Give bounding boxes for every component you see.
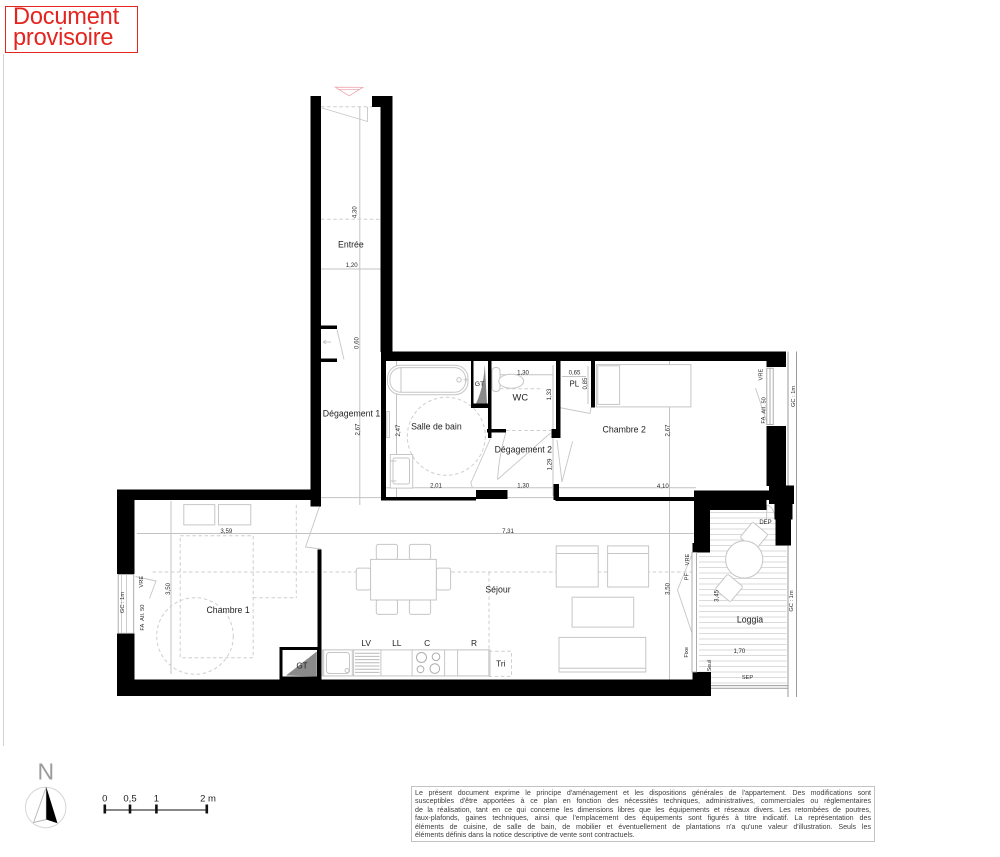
svg-text:1,30: 1,30 <box>517 369 529 376</box>
svg-text:7,31: 7,31 <box>502 528 514 535</box>
svg-text:Fixe: Fixe <box>684 647 690 658</box>
svg-text:1,20: 1,20 <box>346 262 358 269</box>
svg-text:LV: LV <box>361 638 371 648</box>
svg-text:VRE: VRE <box>758 369 764 381</box>
svg-text:Loggia: Loggia <box>737 615 763 625</box>
svg-text:PF: PF <box>685 573 691 581</box>
svg-text:0,85: 0,85 <box>582 377 589 389</box>
svg-text:4,10: 4,10 <box>657 483 669 490</box>
svg-text:AII. 50: AII. 50 <box>762 397 768 413</box>
svg-text:1,33: 1,33 <box>546 388 553 400</box>
svg-text:1,30: 1,30 <box>517 483 529 490</box>
svg-text:Chambre 2: Chambre 2 <box>603 425 646 435</box>
svg-text:VRE: VRE <box>685 553 691 565</box>
svg-text:2,67: 2,67 <box>665 424 672 436</box>
svg-text:SEP: SEP <box>742 675 753 681</box>
svg-text:AII. 50: AII. 50 <box>140 605 146 621</box>
svg-text:WC: WC <box>513 393 529 403</box>
svg-text:Tri: Tri <box>496 659 506 669</box>
svg-text:N: N <box>37 759 54 785</box>
svg-text:Salle de bain: Salle de bain <box>411 422 462 432</box>
svg-text:3,50: 3,50 <box>664 582 671 594</box>
svg-text:Entrée: Entrée <box>338 240 364 250</box>
svg-text:PL: PL <box>569 380 579 389</box>
svg-text:GT: GT <box>475 381 484 388</box>
svg-text:Séjour: Séjour <box>485 585 510 595</box>
svg-text:GC : 1m: GC : 1m <box>791 386 797 407</box>
svg-text:3,59: 3,59 <box>220 528 232 535</box>
svg-text:0,65: 0,65 <box>569 370 581 377</box>
svg-text:GC : 1m: GC : 1m <box>120 592 126 613</box>
svg-text:1: 1 <box>154 794 159 805</box>
svg-text:3,50: 3,50 <box>165 582 172 594</box>
svg-text:2,67: 2,67 <box>355 423 362 435</box>
svg-text:DEP: DEP <box>759 520 771 526</box>
svg-text:2 m: 2 m <box>200 794 216 805</box>
svg-text:0: 0 <box>102 794 107 805</box>
svg-text:2,01: 2,01 <box>430 482 442 489</box>
svg-text:4,30: 4,30 <box>352 206 359 218</box>
svg-text:Dégagement 2: Dégagement 2 <box>495 445 553 455</box>
svg-text:Chambre 1: Chambre 1 <box>206 605 249 615</box>
svg-text:Dégagement 1: Dégagement 1 <box>323 408 381 418</box>
svg-text:VRE: VRE <box>139 576 145 588</box>
svg-text:GT: GT <box>296 662 307 671</box>
svg-text:C: C <box>424 638 430 648</box>
svg-text:0,5: 0,5 <box>123 794 136 805</box>
svg-text:LL: LL <box>392 638 402 648</box>
svg-text:FA: FA <box>761 416 767 423</box>
svg-text:FA: FA <box>140 624 146 631</box>
svg-text:Seuil: Seuil <box>707 660 713 672</box>
svg-text:1,29: 1,29 <box>547 458 554 470</box>
svg-text:2,47: 2,47 <box>395 424 402 436</box>
svg-text:3,45: 3,45 <box>714 589 721 601</box>
svg-text:0,60: 0,60 <box>354 336 361 348</box>
svg-text:1,70: 1,70 <box>733 648 745 655</box>
svg-text:R: R <box>471 638 477 648</box>
svg-text:GC : 1m: GC : 1m <box>789 590 795 611</box>
